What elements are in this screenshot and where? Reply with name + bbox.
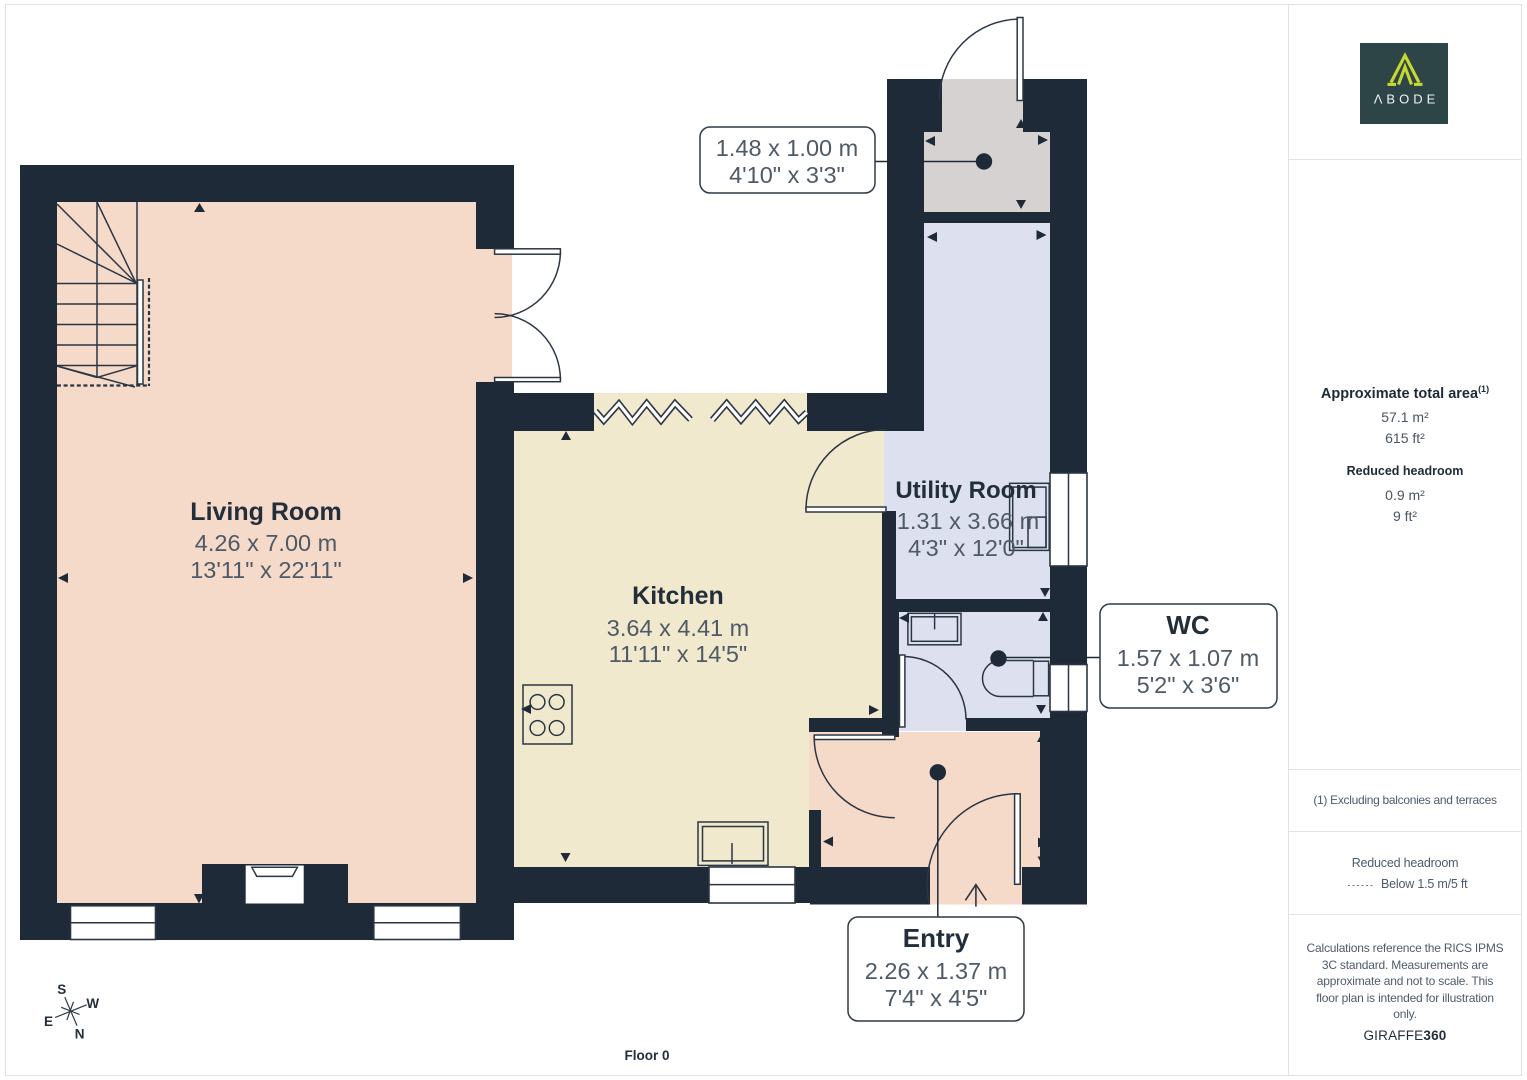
svg-text:3.64 x 4.41 m: 3.64 x 4.41 m [607, 615, 749, 641]
svg-text:4'3" x 12'0": 4'3" x 12'0" [908, 535, 1024, 561]
svg-text:Floor 0: Floor 0 [624, 1048, 669, 1063]
svg-text:N: N [75, 1027, 85, 1042]
svg-text:2.26 x 1.37 m: 2.26 x 1.37 m [865, 958, 1007, 984]
svg-text:4'10" x 3'3": 4'10" x 3'3" [729, 162, 845, 188]
svg-text:1.48 x 1.00 m: 1.48 x 1.00 m [716, 135, 858, 161]
svg-text:4.26 x 7.00 m: 4.26 x 7.00 m [195, 530, 337, 556]
svg-text:E: E [44, 1014, 53, 1029]
svg-text:5'2" x 3'6": 5'2" x 3'6" [1137, 672, 1240, 698]
svg-text:Kitchen: Kitchen [632, 582, 724, 610]
svg-text:WC: WC [1166, 610, 1210, 640]
svg-text:Entry: Entry [903, 923, 970, 953]
svg-text:W: W [86, 996, 99, 1011]
svg-text:11'11" x 14'5": 11'11" x 14'5" [609, 641, 747, 667]
svg-text:Living Room: Living Room [190, 498, 341, 526]
svg-text:1.57 x 1.07 m: 1.57 x 1.07 m [1117, 645, 1259, 671]
svg-text:Utility Room: Utility Room [895, 477, 1036, 504]
svg-text:S: S [57, 982, 66, 997]
svg-text:13'11" x 22'11": 13'11" x 22'11" [190, 557, 342, 583]
svg-text:7'4" x 4'5": 7'4" x 4'5" [885, 985, 988, 1011]
svg-text:1.31 x 3.66 m: 1.31 x 3.66 m [897, 508, 1039, 534]
